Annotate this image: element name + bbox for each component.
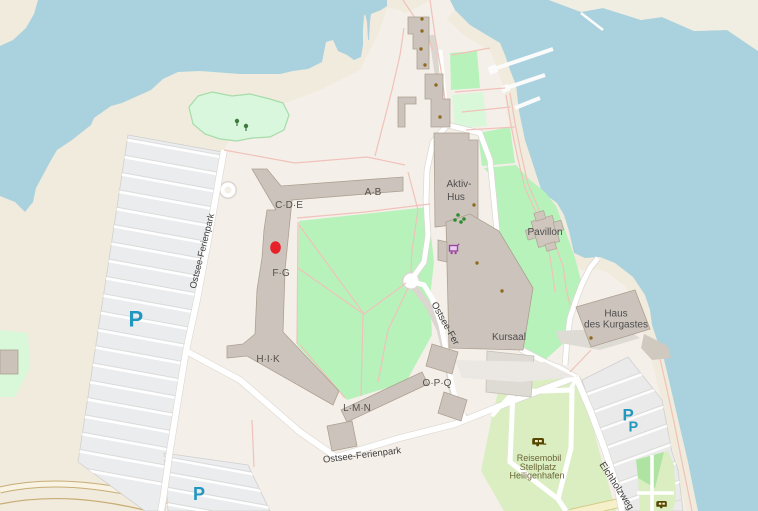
svg-text:Aktiv-: Aktiv- xyxy=(447,179,472,190)
svg-text:H·I·K: H·I·K xyxy=(256,354,280,365)
svg-text:Heiligenhafen: Heiligenhafen xyxy=(509,471,564,481)
svg-text:Haus: Haus xyxy=(604,309,627,320)
svg-text:L·M·N: L·M·N xyxy=(343,403,371,414)
svg-text:P: P xyxy=(629,420,639,436)
svg-text:des Kurgastes: des Kurgastes xyxy=(584,320,648,331)
svg-text:Pavillon: Pavillon xyxy=(527,227,562,238)
svg-text:F·G: F·G xyxy=(272,268,289,279)
svg-text:Kursaal: Kursaal xyxy=(492,332,526,343)
svg-text:C·D·E: C·D·E xyxy=(275,200,303,211)
svg-text:A·B: A·B xyxy=(365,187,382,198)
svg-text:P: P xyxy=(129,307,144,332)
svg-text:P: P xyxy=(193,484,205,504)
svg-text:Hus: Hus xyxy=(447,192,465,203)
svg-text:O·P·Q: O·P·Q xyxy=(423,378,452,389)
